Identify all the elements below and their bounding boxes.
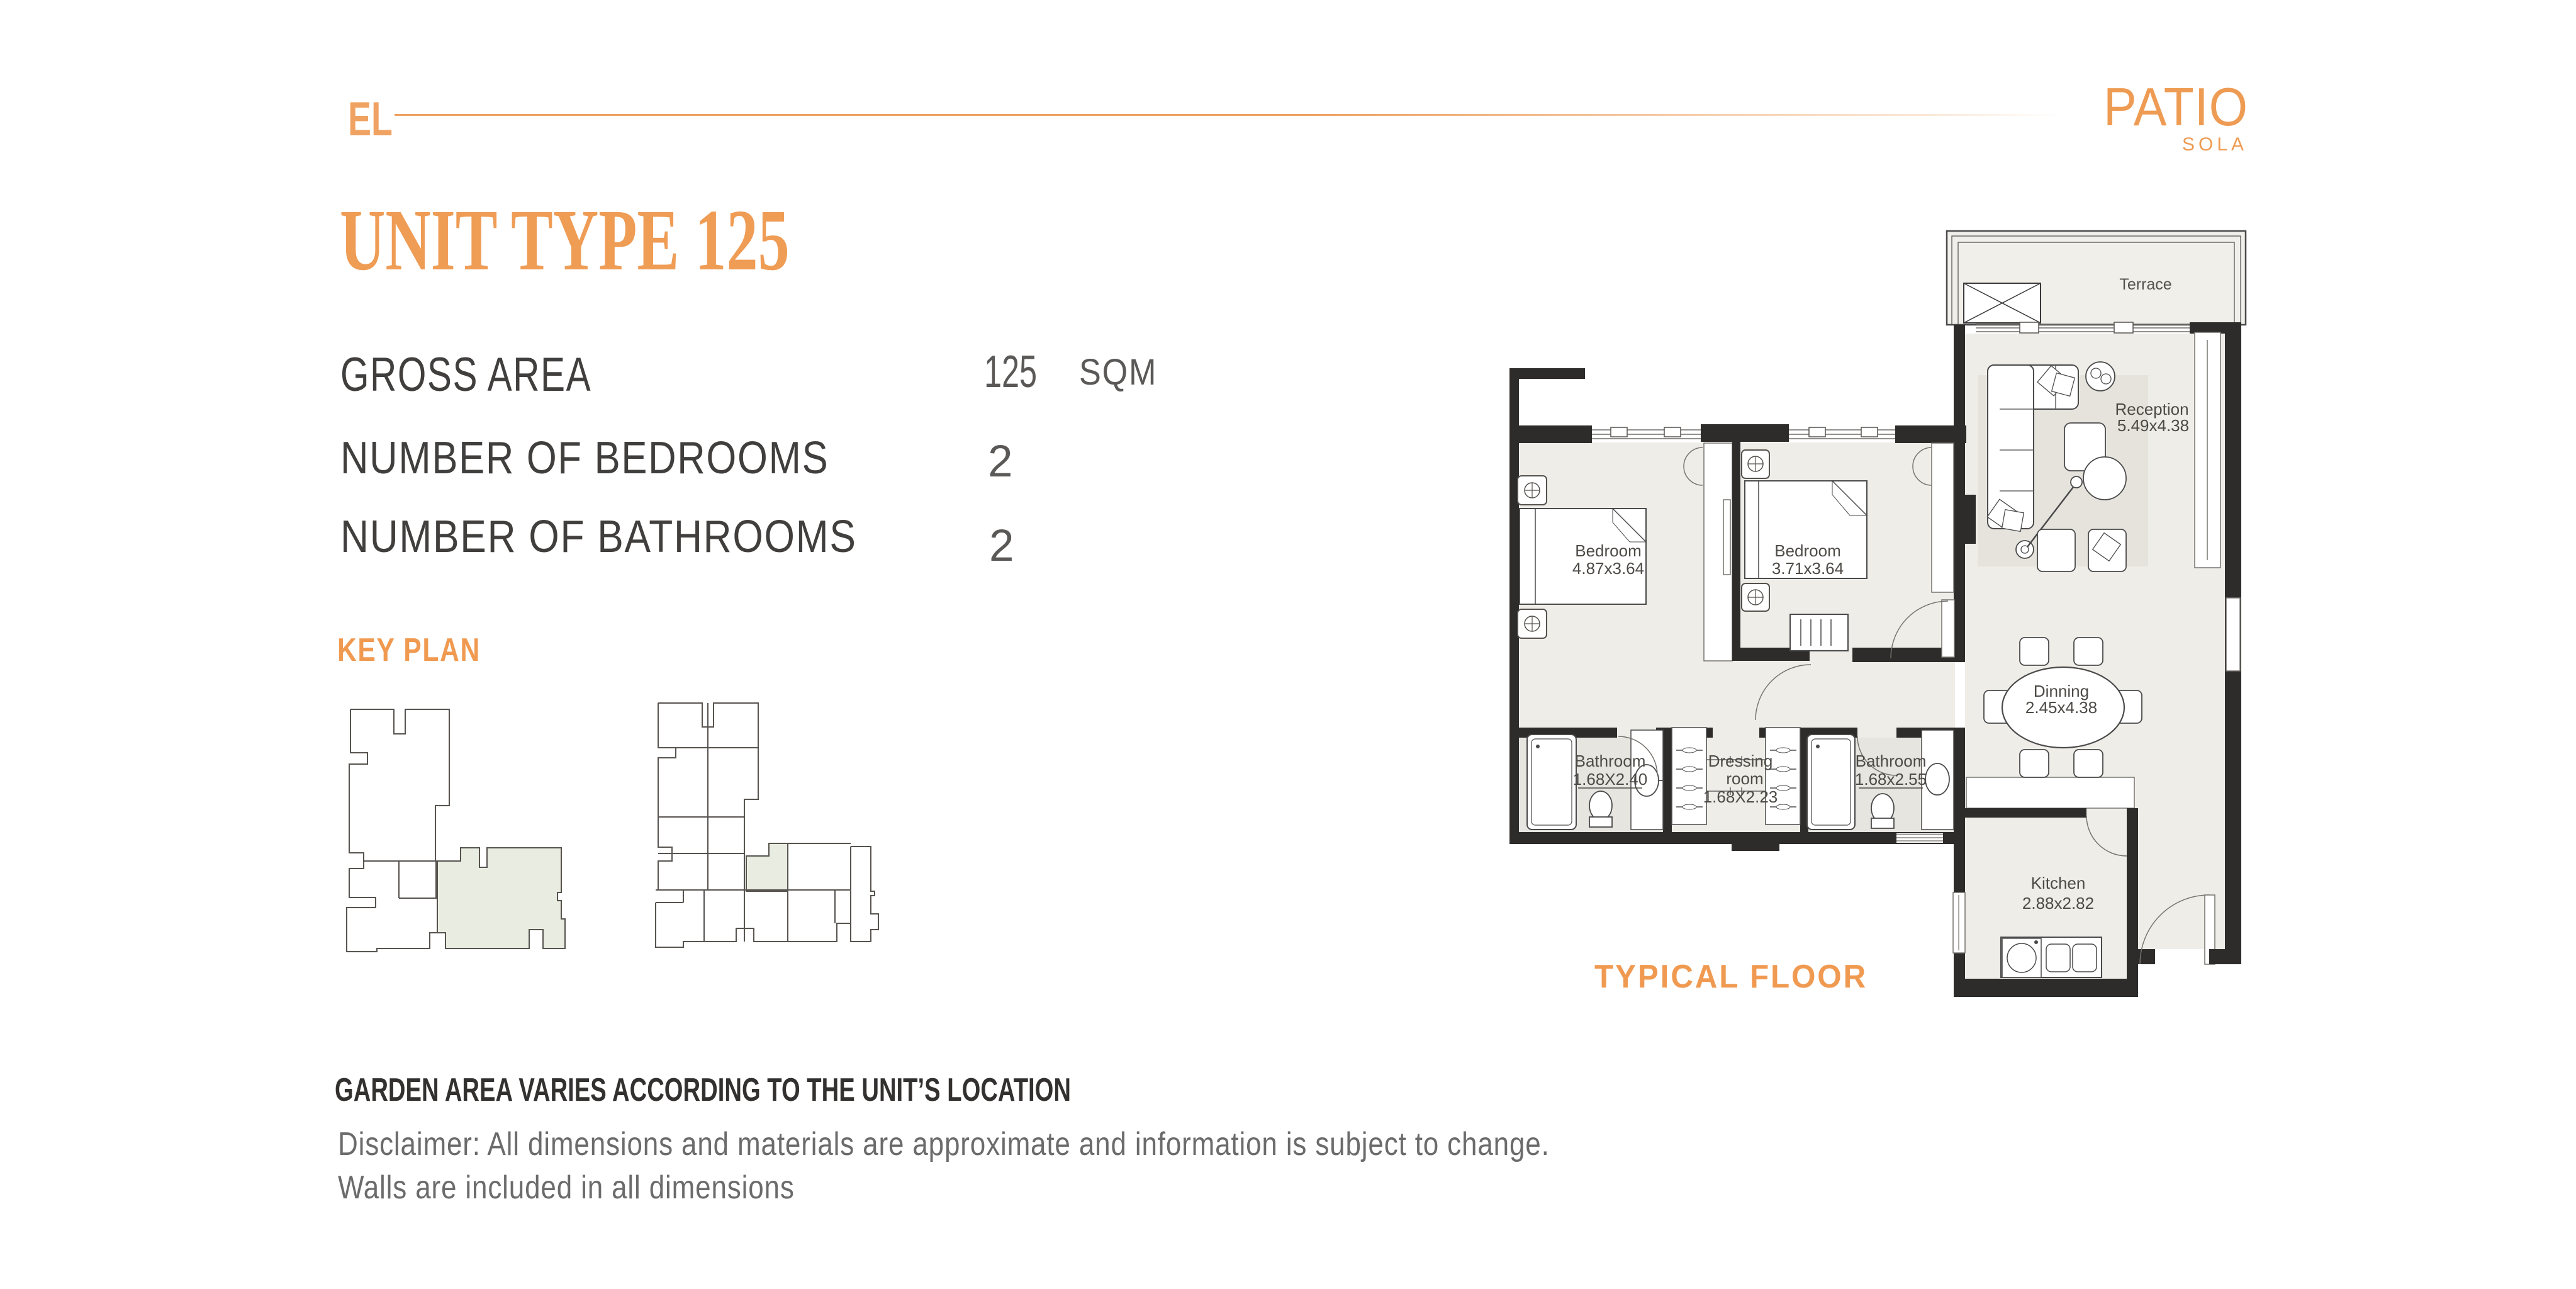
svg-text:3.71x3.64: 3.71x3.64: [1772, 559, 1844, 578]
svg-text:Dressing: Dressing: [1708, 751, 1773, 770]
svg-text:2.88x2.82: 2.88x2.82: [2022, 894, 2094, 913]
svg-text:1.68X2.40: 1.68X2.40: [1573, 770, 1648, 789]
svg-text:Terrace: Terrace: [2119, 276, 2171, 293]
svg-text:Kitchen: Kitchen: [2031, 874, 2086, 892]
svg-text:Bathroom: Bathroom: [1856, 751, 1927, 770]
svg-text:5.49x4.38: 5.49x4.38: [2117, 416, 2189, 435]
svg-text:1.68X2.23: 1.68X2.23: [1703, 787, 1778, 806]
svg-text:2.45x4.38: 2.45x4.38: [2025, 698, 2097, 717]
svg-text:room: room: [1726, 769, 1763, 788]
svg-text:1.68x2.55: 1.68x2.55: [1855, 770, 1927, 789]
svg-text:Bathroom: Bathroom: [1575, 751, 1646, 770]
svg-text:Bedroom: Bedroom: [1774, 541, 1841, 560]
svg-text:Bedroom: Bedroom: [1575, 541, 1642, 560]
svg-text:4.87x3.64: 4.87x3.64: [1572, 559, 1644, 578]
